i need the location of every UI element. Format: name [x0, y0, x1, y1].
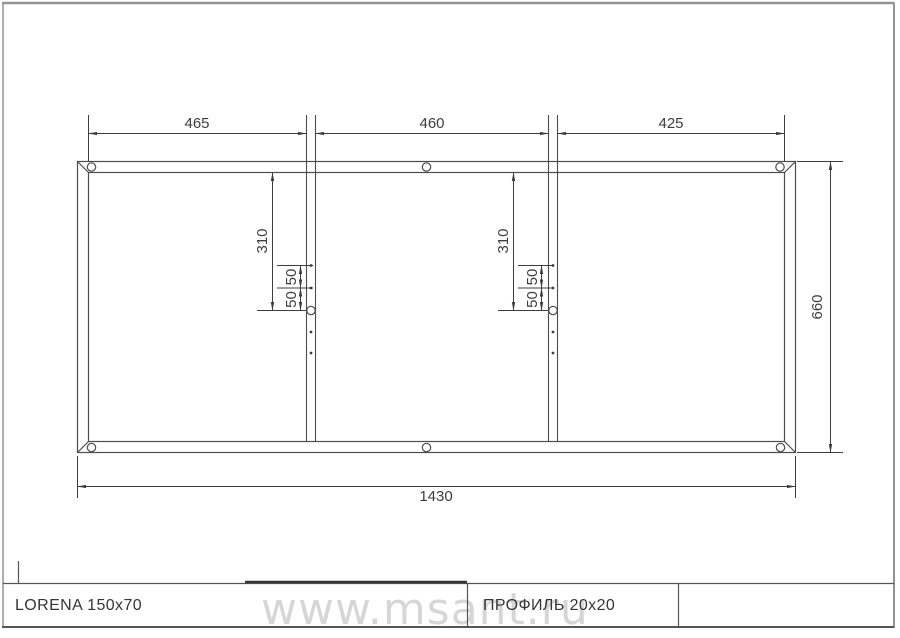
miter-top-right	[785, 162, 796, 173]
pilot-hole	[310, 352, 313, 355]
pilot-hole	[310, 287, 313, 290]
frame-outer-edge	[78, 162, 796, 453]
hole-bottom-left	[87, 443, 95, 451]
dim-label-310: 310	[254, 228, 271, 253]
hole-crossbar-2	[549, 306, 557, 314]
mounting-holes	[87, 163, 784, 452]
frame-inner-edge	[89, 173, 785, 442]
dim-label-310: 310	[495, 228, 512, 253]
hole-crossbar-1	[307, 306, 315, 314]
pilot-hole	[310, 331, 313, 334]
miter-bottom-right	[785, 442, 796, 453]
product-name: LORENA 150x70	[15, 597, 142, 615]
dim-label-465: 465	[184, 115, 209, 132]
dim-label-1430: 1430	[419, 488, 452, 505]
hole-bottom-middle	[422, 443, 430, 451]
pilot-hole	[552, 352, 555, 355]
hole-top-middle	[422, 163, 430, 171]
sheet-border	[2, 3, 895, 627]
pilot-hole	[310, 264, 313, 267]
profile-spec: ПРОФИЛЬ 20x20	[483, 597, 615, 615]
hole-bottom-right	[776, 443, 784, 451]
dim-label-50: 50	[524, 291, 541, 308]
pilot-hole	[552, 287, 555, 290]
dim-label-460: 460	[419, 115, 444, 132]
pilot-holes	[310, 264, 555, 354]
title-block	[2, 561, 895, 627]
hole-top-left	[87, 163, 95, 171]
technical-drawing-canvas: 465 460 425 660 1430 310 50 50	[0, 0, 900, 638]
pilot-hole	[552, 331, 555, 334]
dim-label-50: 50	[283, 269, 300, 286]
dim-label-50: 50	[283, 291, 300, 308]
dim-label-50: 50	[524, 269, 541, 286]
drawing-sheet: www.msant.ru	[0, 0, 900, 638]
dim-label-425: 425	[658, 115, 683, 132]
pilot-hole	[552, 264, 555, 267]
crossbars	[307, 115, 558, 442]
frame-outline	[78, 162, 796, 453]
dim-label-660: 660	[809, 294, 826, 319]
hole-top-right	[776, 163, 784, 171]
